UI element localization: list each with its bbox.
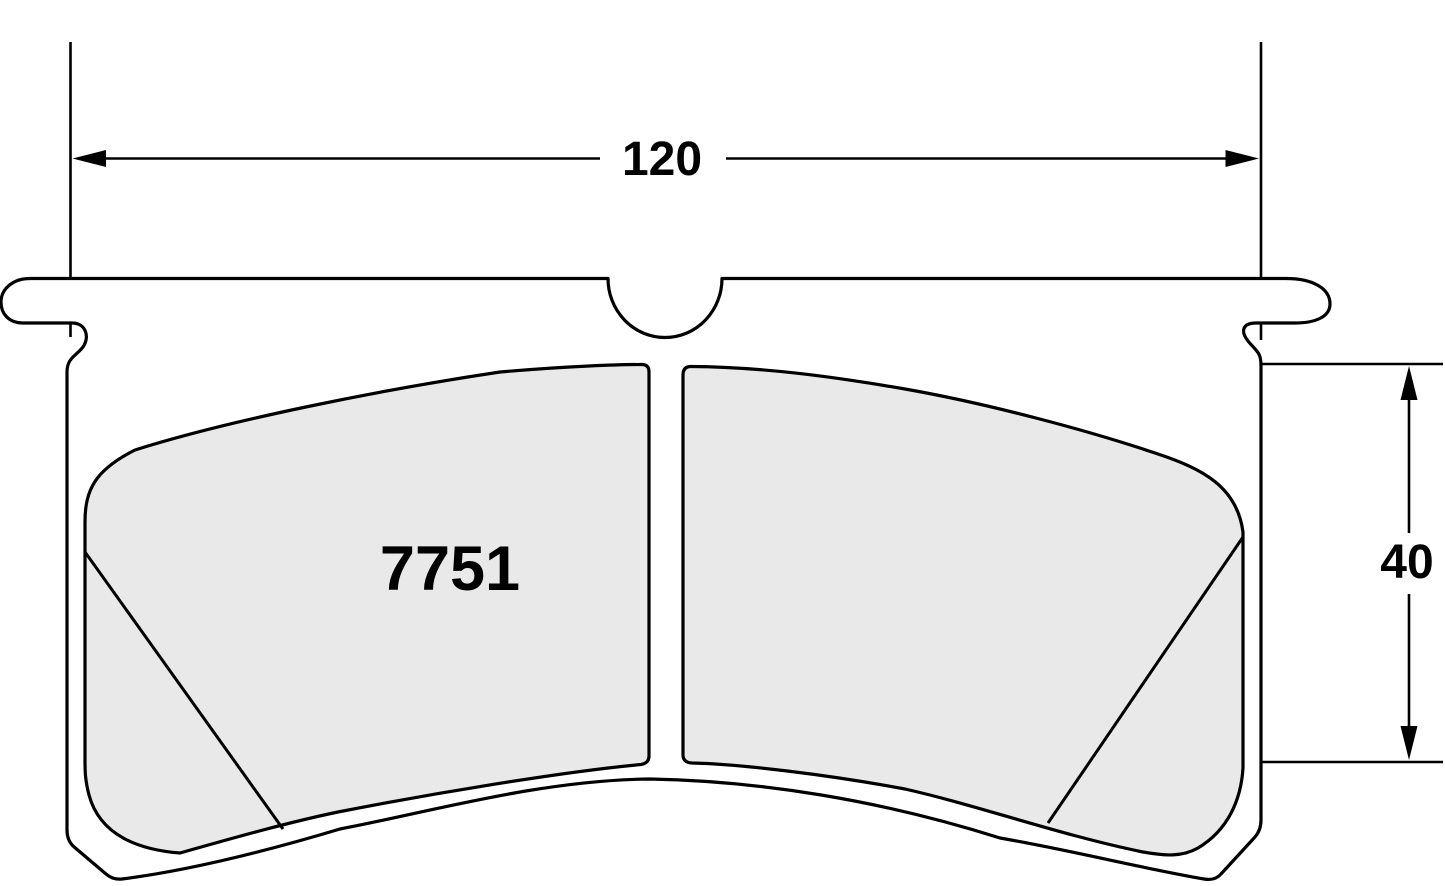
left-arrowhead-icon xyxy=(73,150,107,167)
height-dimension-label: 40 xyxy=(1380,536,1433,589)
width-dimension-label: 120 xyxy=(622,133,702,186)
brake-pad-drawing: 120 40 7751 xyxy=(0,0,1445,886)
drawing-canvas: 120 40 7751 xyxy=(0,0,1445,886)
right-arrowhead-icon xyxy=(1226,150,1260,167)
part-number-label: 7751 xyxy=(380,534,520,604)
down-arrowhead-icon xyxy=(1401,726,1418,760)
width-dimension: 120 xyxy=(73,133,1260,186)
up-arrowhead-icon xyxy=(1401,366,1418,400)
height-dimension: 40 xyxy=(1380,366,1433,760)
